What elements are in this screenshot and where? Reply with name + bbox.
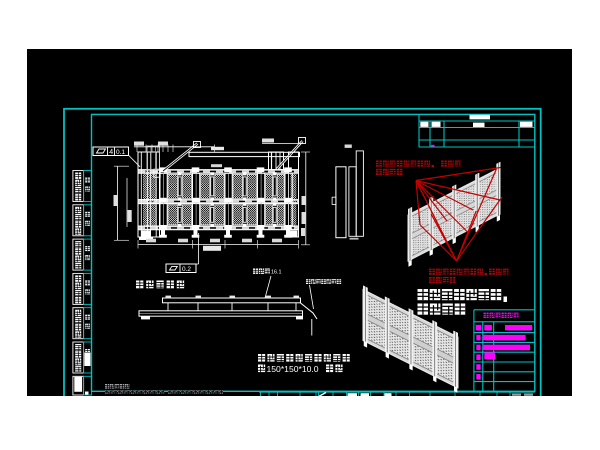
svg-text:4: 4 <box>109 149 113 156</box>
svg-text:16.1: 16.1 <box>271 270 282 276</box>
svg-text:150*150*10.0: 150*150*10.0 <box>267 364 319 374</box>
svg-text:0.2: 0.2 <box>182 266 191 273</box>
svg-text:0.1: 0.1 <box>116 149 125 156</box>
